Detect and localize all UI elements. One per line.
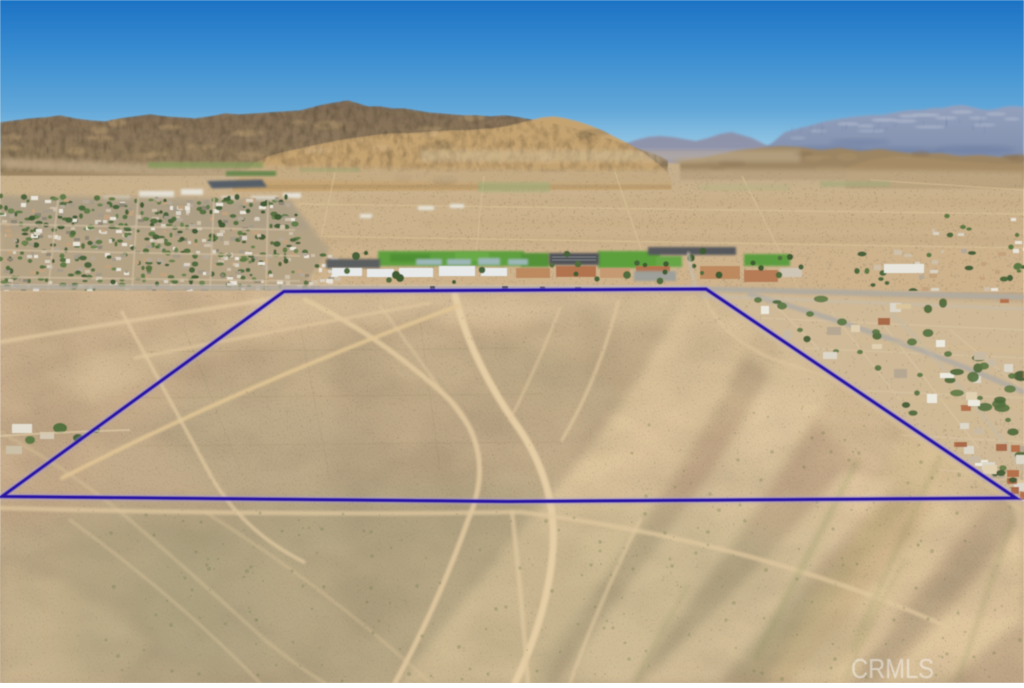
svg-text:CRMLS: CRMLS <box>851 653 934 683</box>
